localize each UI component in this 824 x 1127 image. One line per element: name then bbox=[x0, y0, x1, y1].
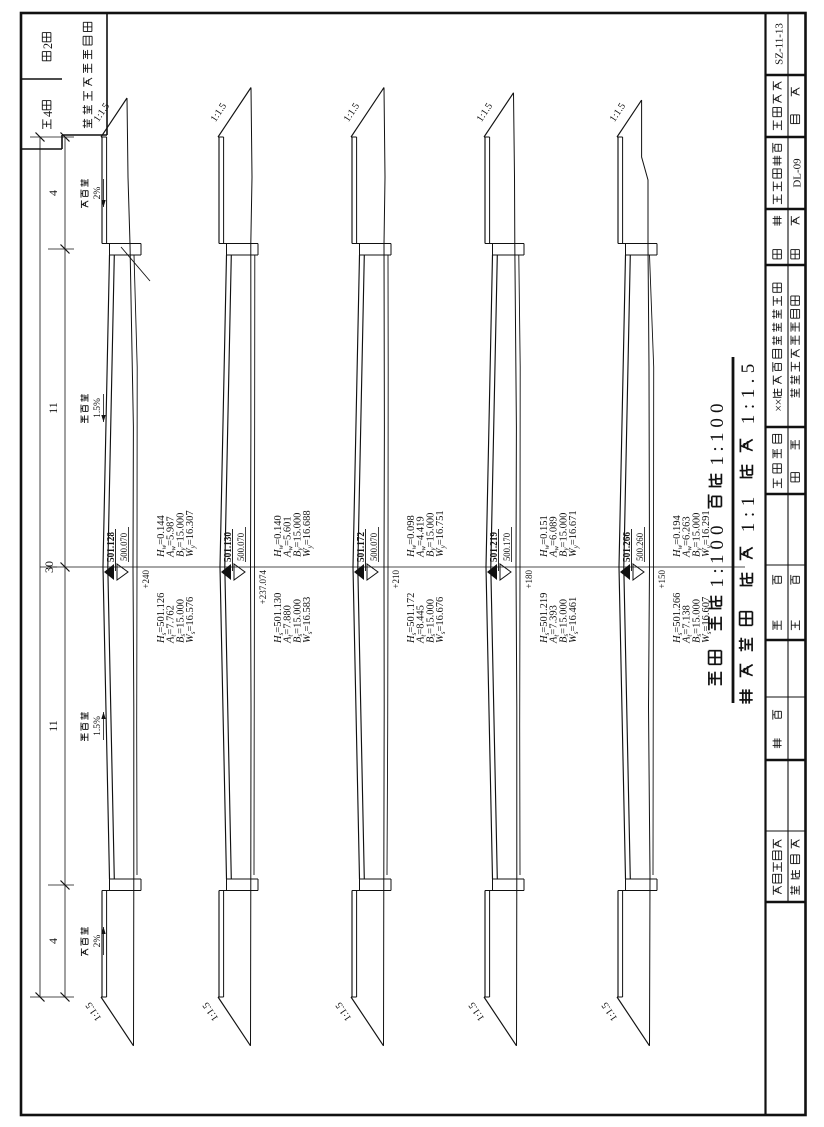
svg-text:Ws=16.676: Ws=16.676 bbox=[435, 597, 447, 643]
svg-text:11: 11 bbox=[46, 402, 60, 414]
svg-text:DL-09: DL-09 bbox=[792, 158, 804, 188]
svg-text:11: 11 bbox=[46, 720, 60, 732]
svg-text:+150: +150 bbox=[657, 570, 667, 589]
svg-text:SZ-11-13: SZ-11-13 bbox=[774, 23, 786, 65]
svg-text:500.260: 500.260 bbox=[635, 533, 645, 561]
svg-text:2: 2 bbox=[41, 43, 55, 49]
svg-text:500.070: 500.070 bbox=[369, 533, 379, 561]
svg-text:501.172: 501.172 bbox=[356, 532, 367, 562]
svg-text:501.219: 501.219 bbox=[489, 532, 500, 562]
svg-text:500.070: 500.070 bbox=[119, 533, 129, 561]
svg-text:Wy=16.307: Wy=16.307 bbox=[185, 510, 197, 557]
svg-text:+237.074: +237.074 bbox=[258, 570, 268, 605]
svg-text:0: 0 bbox=[707, 525, 728, 535]
svg-text:.: . bbox=[738, 379, 759, 384]
svg-text:Wy=16.671: Wy=16.671 bbox=[568, 510, 580, 557]
svg-text:Ws=16.576: Ws=16.576 bbox=[185, 597, 197, 643]
svg-text:Wy=16.688: Wy=16.688 bbox=[302, 510, 314, 557]
svg-text:1: 1 bbox=[707, 456, 728, 466]
svg-text:500.170: 500.170 bbox=[502, 533, 512, 561]
svg-text:1.5%: 1.5% bbox=[93, 398, 103, 418]
svg-text:0: 0 bbox=[707, 403, 728, 413]
svg-text:0: 0 bbox=[707, 418, 728, 428]
svg-text:1: 1 bbox=[707, 554, 728, 564]
svg-text:+210: +210 bbox=[391, 570, 401, 589]
svg-text:Wy=16.751: Wy=16.751 bbox=[435, 510, 447, 557]
svg-text:1: 1 bbox=[738, 389, 759, 399]
svg-text:×: × bbox=[772, 405, 786, 412]
svg-text:4: 4 bbox=[41, 111, 55, 117]
svg-text:1: 1 bbox=[738, 523, 759, 533]
svg-text::: : bbox=[738, 404, 759, 409]
svg-text:1: 1 bbox=[707, 578, 728, 588]
svg-text:500.070: 500.070 bbox=[236, 533, 246, 561]
svg-text:5: 5 bbox=[738, 364, 759, 374]
svg-text:Ws=16.583: Ws=16.583 bbox=[302, 597, 314, 643]
svg-text:4: 4 bbox=[46, 190, 60, 196]
svg-text::: : bbox=[707, 568, 728, 573]
svg-text:1: 1 bbox=[738, 497, 759, 507]
svg-text:+240: +240 bbox=[141, 570, 151, 589]
svg-text:501.266: 501.266 bbox=[622, 532, 633, 562]
svg-text:501.128: 501.128 bbox=[106, 532, 117, 562]
svg-text:501.130: 501.130 bbox=[223, 532, 234, 562]
svg-text:1: 1 bbox=[707, 432, 728, 442]
svg-text:Ws=16.461: Ws=16.461 bbox=[568, 597, 580, 643]
svg-text::: : bbox=[738, 512, 759, 517]
svg-text:4: 4 bbox=[46, 938, 60, 944]
svg-text:+180: +180 bbox=[524, 570, 534, 589]
svg-text:1: 1 bbox=[738, 415, 759, 425]
svg-text:1.5%: 1.5% bbox=[93, 716, 103, 736]
svg-text:0: 0 bbox=[707, 540, 728, 550]
svg-text::: : bbox=[707, 446, 728, 451]
svg-text:×: × bbox=[772, 399, 786, 406]
